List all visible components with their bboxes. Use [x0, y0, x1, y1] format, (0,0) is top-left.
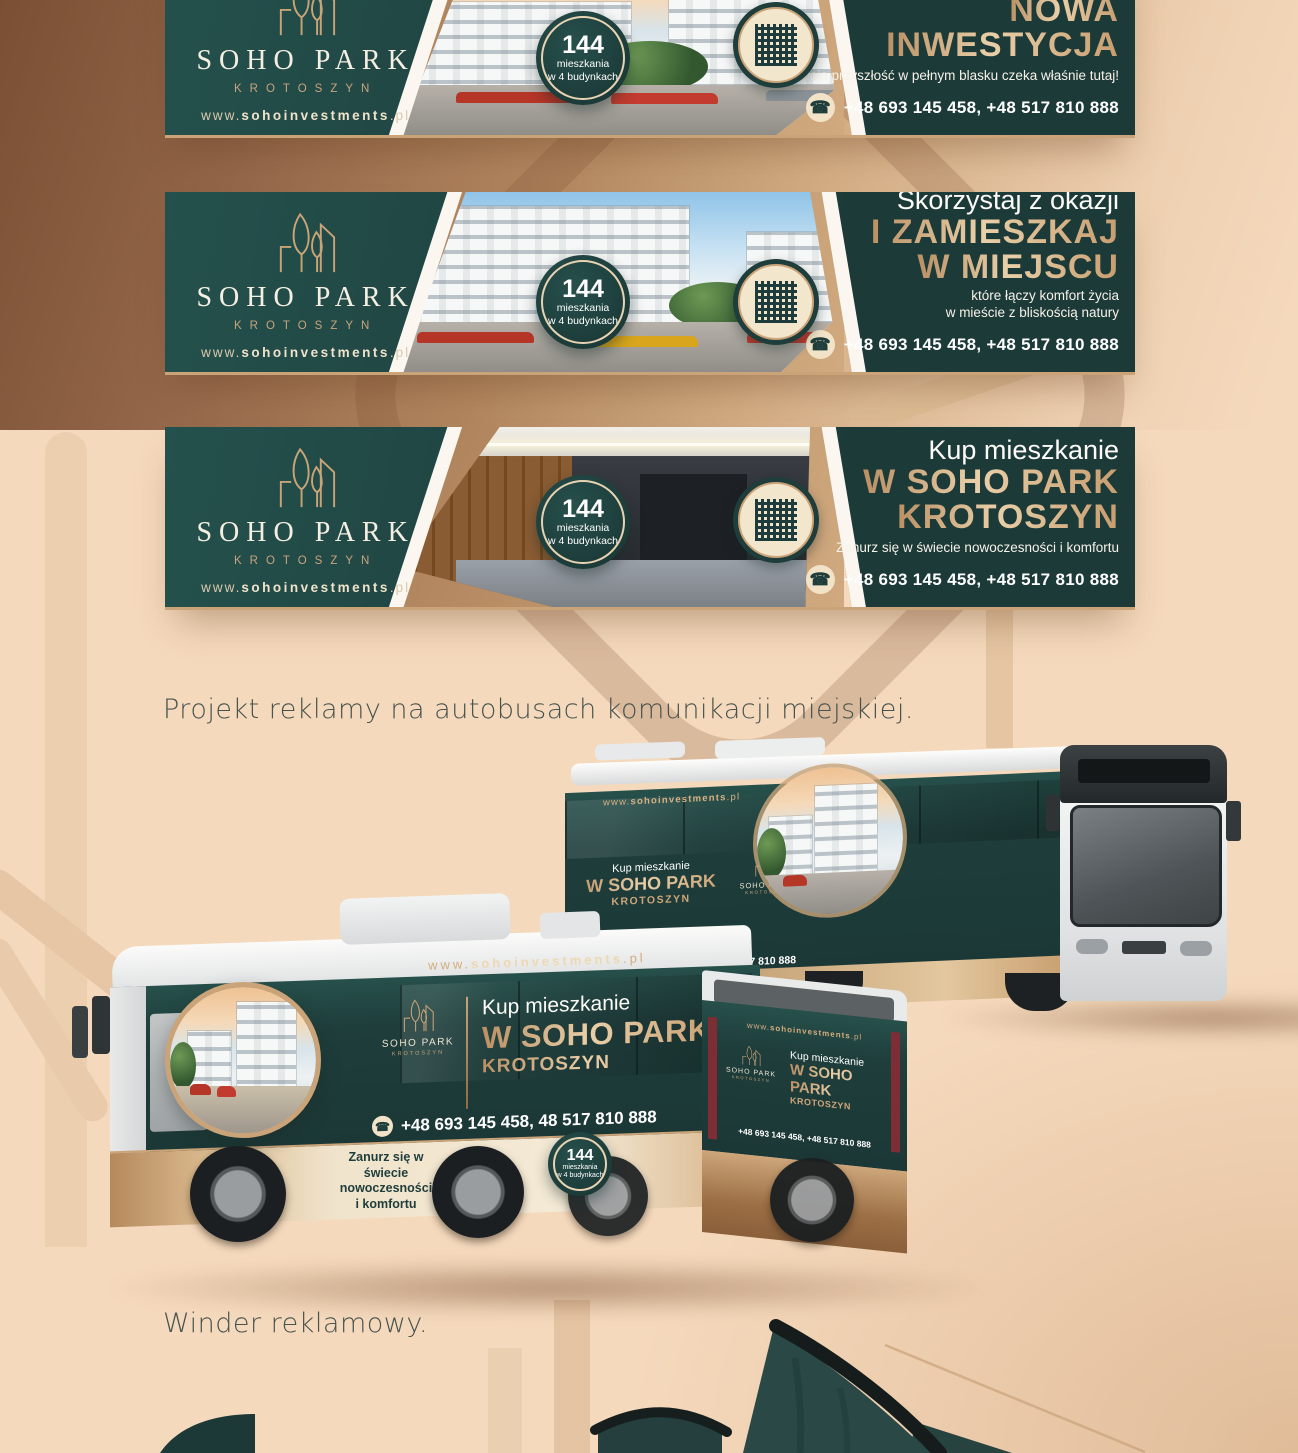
bus-ac-unit: [540, 911, 601, 939]
banner-kup-mieszkanie: SOHO PARK KROTOSZYN www.sohoinvestments.…: [165, 427, 1135, 610]
bus-wheel: [432, 1146, 524, 1238]
side-mirror: [72, 1006, 88, 1058]
url-post: .pl: [390, 108, 410, 123]
soho-park-logo-icon: [398, 994, 438, 1035]
badge-number: 144: [562, 497, 604, 522]
url-post: .pl: [727, 792, 741, 804]
url-post: .pl: [623, 950, 646, 966]
banner-text-block: Tu powstaje NOWA INWESTYCJA Twoja przysz…: [793, 0, 1119, 135]
banner-headline: INWESTYCJA: [886, 28, 1119, 63]
logo-city: KROTOSZYN: [234, 83, 377, 95]
rear-phones: +48 693 145 458, +48 517 810 888: [702, 1122, 907, 1154]
qr-circle: [733, 259, 819, 345]
side-mirror: [92, 996, 110, 1054]
soho-park-logo: SOHO PARK KROTOSZYN www.sohoinvestments.…: [165, 192, 446, 372]
bus-mini-logo: SOHO PARK KROTOSZYN: [720, 1040, 782, 1085]
tagline-line1: Zanurz się w świecie: [328, 1150, 444, 1181]
red-stripe: [891, 1032, 900, 1153]
url-pre: www.: [201, 345, 241, 360]
subtitle-line2: w mieście z bliskością natury: [946, 305, 1119, 322]
bus-front-cab: [1060, 743, 1227, 1011]
tagline-line2: nowoczesności: [328, 1181, 444, 1197]
banner-headline: W MIEJSCU: [917, 250, 1119, 285]
winder-section-heading: Winder reklamowy.: [163, 1308, 428, 1339]
phone-numbers: +48 693 145 458, +48 517 810 888: [844, 570, 1119, 590]
soho-park-logo-icon: [269, 439, 343, 513]
logo-url: www.sohoinvestments.pl: [201, 580, 410, 595]
tagline-line3: i komfortu: [328, 1197, 444, 1213]
url-pre: www.: [747, 1021, 770, 1032]
soho-park-logo-icon: [269, 0, 343, 41]
badge-line2: w 4 budynkach: [548, 535, 618, 548]
banner-subtitle: które łączy komfort życia w mieście z bl…: [946, 288, 1119, 322]
banner-text-block: Skorzystaj z okazji I ZAMIESZKAJ W MIEJS…: [806, 192, 1119, 372]
bus-tagline: Zanurz się w świecie nowoczesności i kom…: [328, 1150, 444, 1213]
qr-code: [755, 281, 797, 323]
side-mirror: [1046, 795, 1059, 831]
bus-wheel: [770, 1158, 854, 1242]
qr-circle: [733, 2, 819, 88]
banner-headline: KROTOSZYN: [897, 500, 1119, 535]
badge-line1: mieszkania: [557, 58, 610, 71]
logo-name: SOHO PARK: [382, 1036, 454, 1050]
url-pre: www.: [201, 108, 241, 123]
logo-name: SOHO PARK: [196, 45, 414, 77]
bus-mockup-side: SOHO PARK KROTOSZYN Kup mieszkanie W SOH…: [70, 888, 950, 1318]
url-post: .pl: [390, 345, 410, 360]
badge-line2: w 4 budynkach: [548, 315, 618, 328]
url-domain: sohoinvestments: [770, 1023, 851, 1040]
rear-headline-block: Kup mieszkanie W SOHO PARK KROTOSZYN: [790, 1049, 892, 1116]
url-pre: www.: [603, 796, 631, 808]
logo-city: KROTOSZYN: [234, 555, 377, 567]
banner-intro: Skorzystaj z okazji: [897, 192, 1119, 215]
phone-icon: ☎: [372, 1115, 393, 1137]
banner-headline: I ZAMIESZKAJ: [871, 215, 1119, 250]
phone-numbers: +48 693 145 458, +48 517 810 888: [844, 335, 1119, 355]
front-grill: [1122, 941, 1166, 954]
phone-icon: ☎: [806, 93, 835, 122]
banner-phone-row: ☎ +48 693 145 458, +48 517 810 888: [806, 565, 1119, 594]
banner-subtitle: Twoja przyszłość w pełnym blasku czeka w…: [793, 67, 1119, 85]
badge-144: 144 mieszkania w 4 budynkach: [548, 1132, 612, 1196]
windshield: [1070, 805, 1222, 927]
banner-intro: Kup mieszkanie: [928, 435, 1119, 465]
badge-number: 144: [567, 1148, 594, 1164]
badge-line1: mieszkania: [562, 1164, 597, 1172]
url-pre: www.: [201, 580, 241, 595]
url-domain: sohoinvestments: [241, 580, 390, 595]
phone-icon: ☎: [806, 565, 835, 594]
url-domain: sohoinvestments: [241, 108, 390, 123]
bus-front-pillar: [110, 986, 146, 1155]
bus-ac-unit: [595, 741, 685, 760]
badge-line2: w 4 budynkach: [548, 71, 618, 84]
flag-fin: [160, 1414, 255, 1453]
logo-city: KROTOSZYN: [234, 320, 377, 332]
bus-ac-unit: [339, 893, 511, 945]
banner-zamieszkaj: SOHO PARK KROTOSZYN www.sohoinvestments.…: [165, 192, 1135, 375]
banner-nowa-inwestycja: SOHO PARK KROTOSZYN www.sohoinvestments.…: [165, 0, 1135, 138]
banner-phone-row: ☎ +48 693 145 458, +48 517 810 888: [806, 330, 1119, 359]
bus-phone-row: ☎ +48 693 145 458, 48 517 810 888: [372, 1106, 657, 1137]
soho-park-logo-icon: [269, 204, 343, 278]
banner-phone-row: ☎ +48 693 145 458, +48 517 810 888: [806, 93, 1119, 122]
logo-url: www.sohoinvestments.pl: [201, 108, 410, 123]
subtitle-line1: które łączy komfort życia: [946, 288, 1119, 305]
badge-144: 144 mieszkania w 4 budynkach: [536, 475, 630, 569]
bus-ac-unit: [715, 737, 825, 759]
url-post: .pl: [390, 580, 410, 595]
badge-144: 144 mieszkania w 4 budynkach: [536, 255, 630, 349]
qr-code: [755, 24, 797, 66]
logo-name: SOHO PARK: [196, 517, 414, 549]
phone-numbers: +48 693 145 458, +48 517 810 888: [844, 98, 1119, 118]
url-pre: www.: [428, 956, 472, 972]
banner-subtitle: Zanurz się w świecie nowoczesności i kom…: [836, 539, 1119, 557]
banner-text-block: Kup mieszkanie W SOHO PARK KROTOSZYN Zan…: [806, 427, 1119, 607]
qr-circle: [733, 477, 819, 563]
bus-logo-block: SOHO PARK KROTOSZYN: [378, 993, 458, 1058]
headlight: [1180, 941, 1212, 956]
soho-park-logo: SOHO PARK KROTOSZYN www.sohoinvestments.…: [165, 0, 446, 135]
bus-wheel: [190, 1146, 286, 1242]
headlight: [1076, 939, 1108, 954]
phone-numbers: +48 693 145 458, 48 517 810 888: [401, 1107, 657, 1136]
rear-wrap: www.sohoinvestments.pl SOHO PARK KROTOSZ…: [702, 1000, 907, 1172]
banner-headline: W SOHO PARK: [863, 465, 1119, 500]
banner-headline: NOWA: [1009, 0, 1119, 28]
badge-line2: w 4 budynkach: [557, 1172, 604, 1180]
soho-park-logo-icon: [739, 1042, 763, 1069]
logo-url: www.sohoinvestments.pl: [201, 345, 410, 360]
badge-144: 144 mieszkania w 4 budynkach: [536, 11, 630, 105]
decor-right-band: [986, 600, 1013, 748]
divider-line: [466, 997, 468, 1109]
url-post: .pl: [851, 1032, 862, 1042]
side-mirror: [1226, 801, 1241, 841]
red-stripe: [708, 1017, 717, 1140]
qr-code: [755, 499, 797, 541]
badge-line1: mieszkania: [557, 522, 610, 535]
destination-display: [1078, 759, 1210, 783]
bus-circle-photo: [165, 982, 321, 1138]
buses-section-heading: Projekt reklamy na autobusach komunikacj…: [163, 694, 914, 725]
badge-line1: mieszkania: [557, 302, 610, 315]
logo-name: SOHO PARK: [196, 282, 414, 314]
phone-icon: ☎: [806, 330, 835, 359]
bus-headline-block: Kup mieszkanie W SOHO PARK KROTOSZYN: [482, 988, 722, 1078]
badge-number: 144: [562, 33, 604, 58]
flag-large: [743, 1330, 930, 1453]
soho-park-logo: SOHO PARK KROTOSZYN www.sohoinvestments.…: [165, 427, 446, 607]
url-domain: sohoinvestments: [241, 345, 390, 360]
badge-number: 144: [562, 277, 604, 302]
